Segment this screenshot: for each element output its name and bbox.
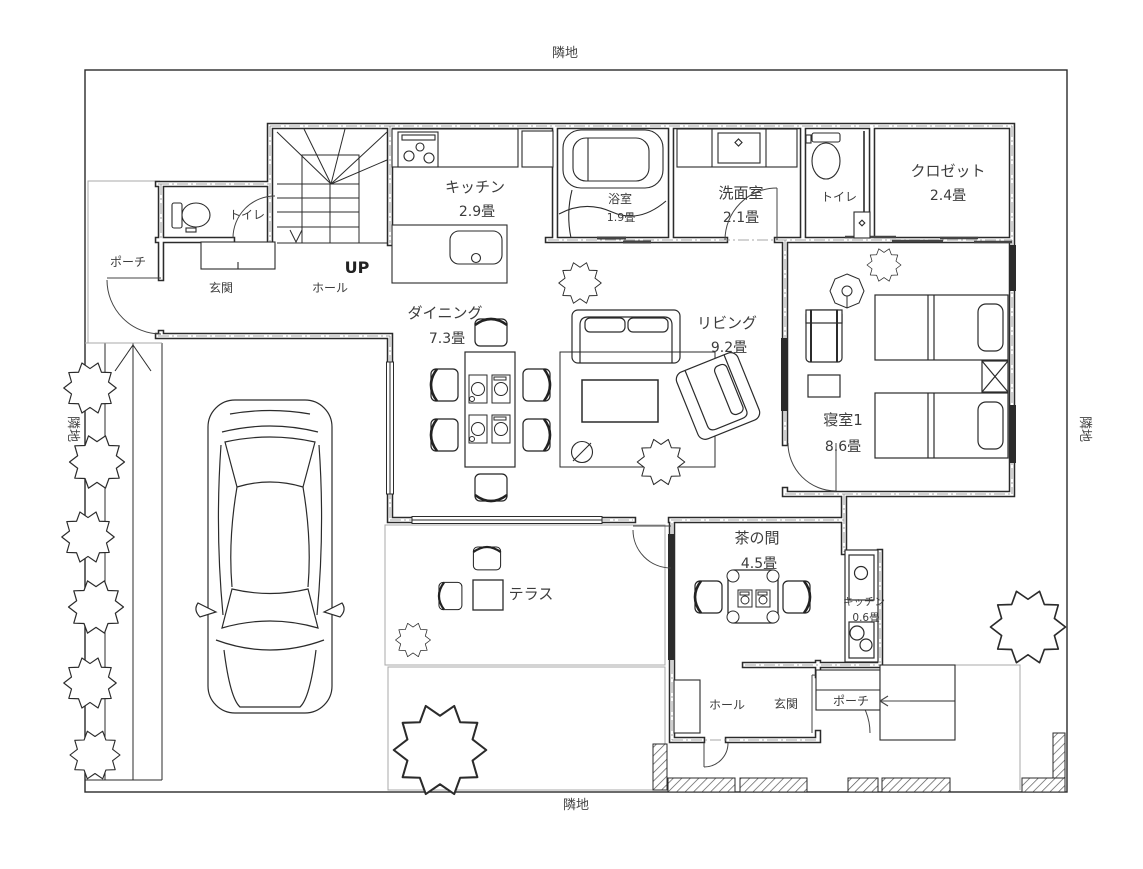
washroom-fixtures [677, 129, 797, 167]
living-area: 9.2畳 [711, 340, 747, 356]
toilet-front-fixture [172, 203, 210, 232]
armchair [674, 350, 762, 441]
fences [653, 733, 1065, 792]
kitchenette-area: 0.6畳 [852, 612, 880, 624]
bush-icon [64, 658, 117, 708]
toilet-rear-fixture [806, 131, 870, 238]
bush-icon [70, 436, 125, 488]
closet-area: 2.4畳 [930, 188, 966, 204]
bedroom1-area: 8.6畳 [825, 439, 861, 455]
staircase [277, 129, 387, 243]
bedroom1-label: 寝室1 [823, 411, 863, 429]
tree-icon [991, 591, 1066, 662]
living-label: リビング [697, 314, 757, 332]
dining-label: ダイニング [407, 304, 482, 322]
bed-1 [875, 295, 1008, 360]
wash-basin [718, 133, 760, 163]
hall-front-label: ホール [312, 281, 348, 295]
bedroom-west-window [781, 338, 788, 411]
pillow [978, 304, 1003, 351]
dining-area: 7.3畳 [429, 331, 465, 347]
tearoom-label: 茶の間 [734, 529, 779, 547]
bedroom-chair [806, 310, 842, 362]
stair-down-arrow-icon [290, 230, 302, 242]
adjacent-land-label-top: 隣地 [552, 45, 578, 61]
kitchen-area: 2.9畳 [459, 204, 495, 220]
living-table [582, 380, 658, 422]
bush-icon [62, 512, 115, 562]
car [196, 400, 344, 713]
bathroom-label: 浴室 [608, 191, 632, 206]
terrace-table [473, 580, 503, 610]
toilet-rear-label: トイレ [821, 190, 857, 204]
dining-table [465, 352, 515, 467]
floor-plan-page: 隣地 隣地 隣地 隣地 ポーチ トイレ 玄関 ホール UP キッチン 2.9畳 … [0, 0, 1143, 869]
bedroom-east-window-2 [1009, 405, 1016, 463]
living-furniture [560, 310, 762, 467]
pillow [978, 402, 1003, 449]
floor-lamp-icon [572, 442, 593, 463]
side-table [808, 375, 840, 397]
bathroom-area: 1.9畳 [607, 211, 636, 224]
porch-front-label: ポーチ [110, 255, 146, 269]
entrance-front [201, 242, 275, 269]
terrace-set [439, 547, 503, 610]
adjacent-land-label-right: 隣地 [1077, 416, 1093, 442]
floor-plan-drawing: 隣地 隣地 隣地 隣地 ポーチ トイレ 玄関 ホール UP キッチン 2.9畳 … [0, 0, 1143, 869]
tearoom-area: 4.5畳 [741, 556, 777, 572]
bush-icon [396, 623, 431, 656]
bush-icon [64, 363, 117, 413]
bedroom-lamp-icon [830, 274, 864, 308]
tree-icon [394, 706, 487, 794]
adjacent-land-label-bottom: 隣地 [563, 797, 589, 813]
entrance-front-label: 玄関 [209, 280, 233, 295]
terrace-label: テラス [509, 585, 554, 603]
bed-2 [875, 393, 1008, 458]
bedroom-furniture [806, 274, 1008, 458]
stairs-up-label: UP [345, 258, 370, 277]
bush-icon [867, 249, 901, 281]
kitchenette-label: キッチン [843, 596, 885, 608]
tall-cabinet [522, 131, 553, 167]
entrance-rear-label: 玄関 [774, 696, 798, 711]
front-entrance-door [107, 278, 161, 334]
bush-icon [69, 581, 124, 633]
tearoom-west-window [668, 534, 675, 660]
porch-rear-label: ポーチ [833, 694, 869, 708]
rear-gate-door [704, 743, 728, 767]
nightstand [982, 361, 1008, 392]
tearoom-set [695, 570, 810, 623]
toilet-front-label: トイレ [229, 208, 265, 222]
bush-icon [559, 263, 602, 303]
bedroom-east-window-1 [1009, 245, 1016, 291]
bathtub [563, 130, 663, 188]
kitchen-label: キッチン [445, 178, 505, 196]
hall-rear-label: ホール [709, 698, 745, 712]
bush-icon [70, 731, 120, 779]
sofa [572, 310, 680, 363]
shoe-cabinet [674, 680, 700, 733]
adjacent-land-label-left: 隣地 [65, 416, 81, 442]
bush-icon [637, 439, 685, 484]
closet-label: クロゼット [910, 162, 985, 180]
washroom-area: 2.1畳 [723, 210, 759, 226]
stair-fan-lines [277, 129, 387, 184]
washroom-label: 洗面室 [718, 184, 763, 202]
